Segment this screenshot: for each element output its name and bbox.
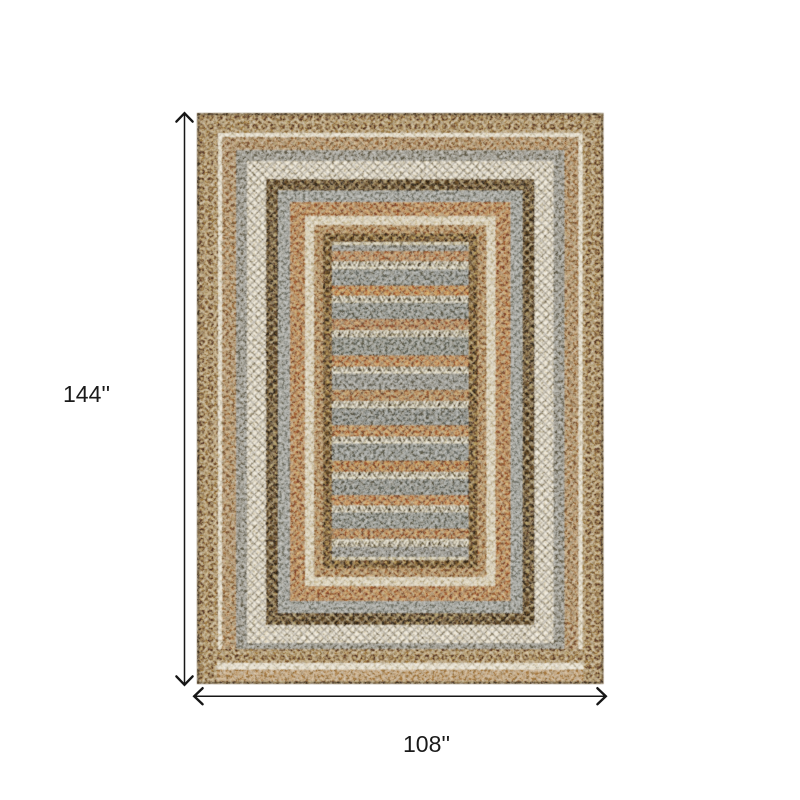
svg-text:108'': 108''	[403, 731, 450, 757]
svg-text:144'': 144''	[63, 381, 110, 407]
